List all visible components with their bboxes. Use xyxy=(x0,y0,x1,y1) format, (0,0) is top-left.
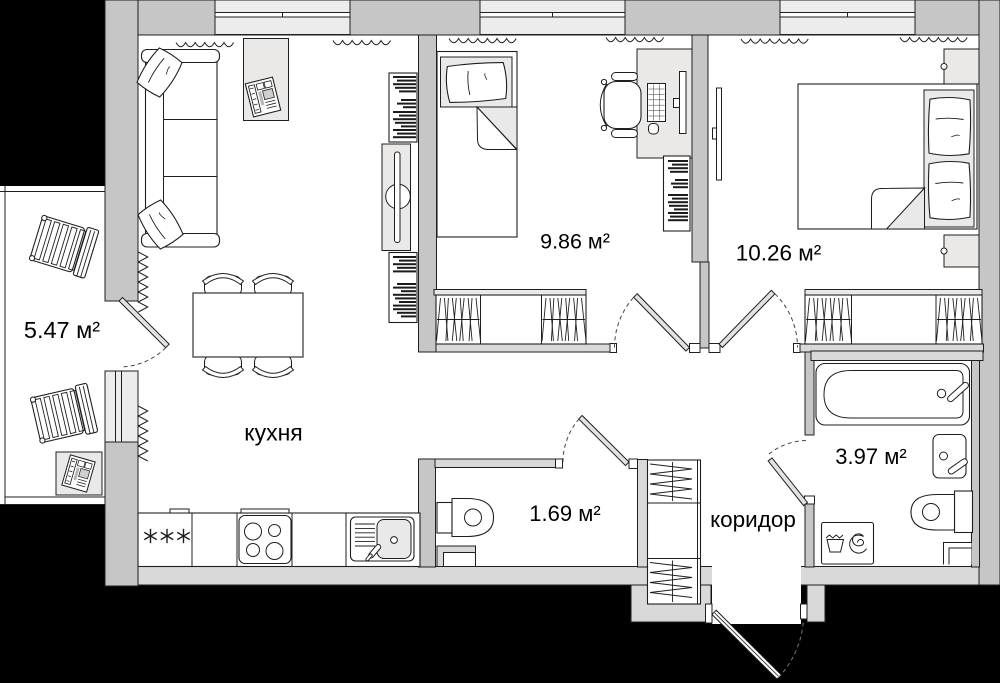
svg-text:5.47 м²: 5.47 м² xyxy=(24,317,100,343)
svg-text:10.26 м²: 10.26 м² xyxy=(736,241,822,266)
svg-text:9.86 м²: 9.86 м² xyxy=(540,230,610,254)
svg-text:3.97 м²: 3.97 м² xyxy=(835,444,906,469)
svg-text:коридор: коридор xyxy=(710,507,796,532)
svg-text:кухня: кухня xyxy=(244,420,302,446)
svg-text:1.69 м²: 1.69 м² xyxy=(529,501,600,526)
